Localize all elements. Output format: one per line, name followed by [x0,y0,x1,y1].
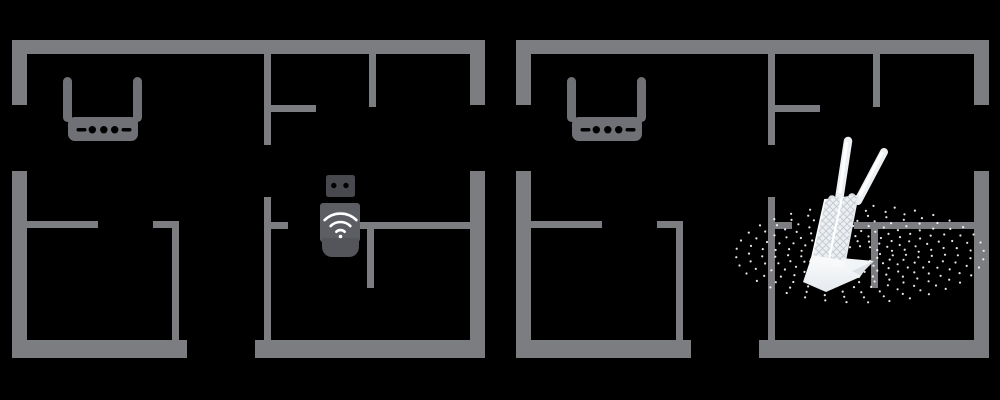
wall-segment [12,40,27,105]
wall-segment [470,171,485,358]
wall-segment [153,221,179,228]
wall-segment [768,54,775,145]
router-antenna-left [567,77,576,122]
wall-segment [255,340,485,358]
wall-segment [854,222,974,229]
wall-segment [531,221,602,228]
wall-segment [367,229,374,288]
wall-segment [974,171,989,358]
wall-segment [516,340,691,358]
router-antenna-right [637,77,646,122]
wall-segment [775,105,820,112]
illustration-canvas [0,0,1000,400]
wall-segment [12,40,485,54]
wall-segment [759,340,989,358]
usb-cap [322,238,359,257]
wall-segment [264,197,271,340]
wall-segment [271,222,288,229]
wall-segment [676,228,683,340]
usb-wifi-adapter-icon [320,175,360,257]
wall-segment [12,171,27,358]
wall-segment [12,340,187,358]
wall-segment [873,54,880,107]
wall-segment [470,40,485,105]
coverage-comparison-diagram [0,0,1000,400]
router-antenna-right [133,77,142,122]
wall-segment [516,40,989,54]
wall-segment [516,40,531,105]
wall-segment [271,105,316,112]
wall-segment [974,40,989,105]
wall-segment [264,54,271,145]
wall-segment [350,222,470,229]
wall-segment [369,54,376,107]
router-antenna-left [63,77,72,122]
usb-plug [326,175,355,197]
wall-segment [516,171,531,358]
wall-segment [27,221,98,228]
wall-segment [172,228,179,340]
wall-segment [657,221,683,228]
